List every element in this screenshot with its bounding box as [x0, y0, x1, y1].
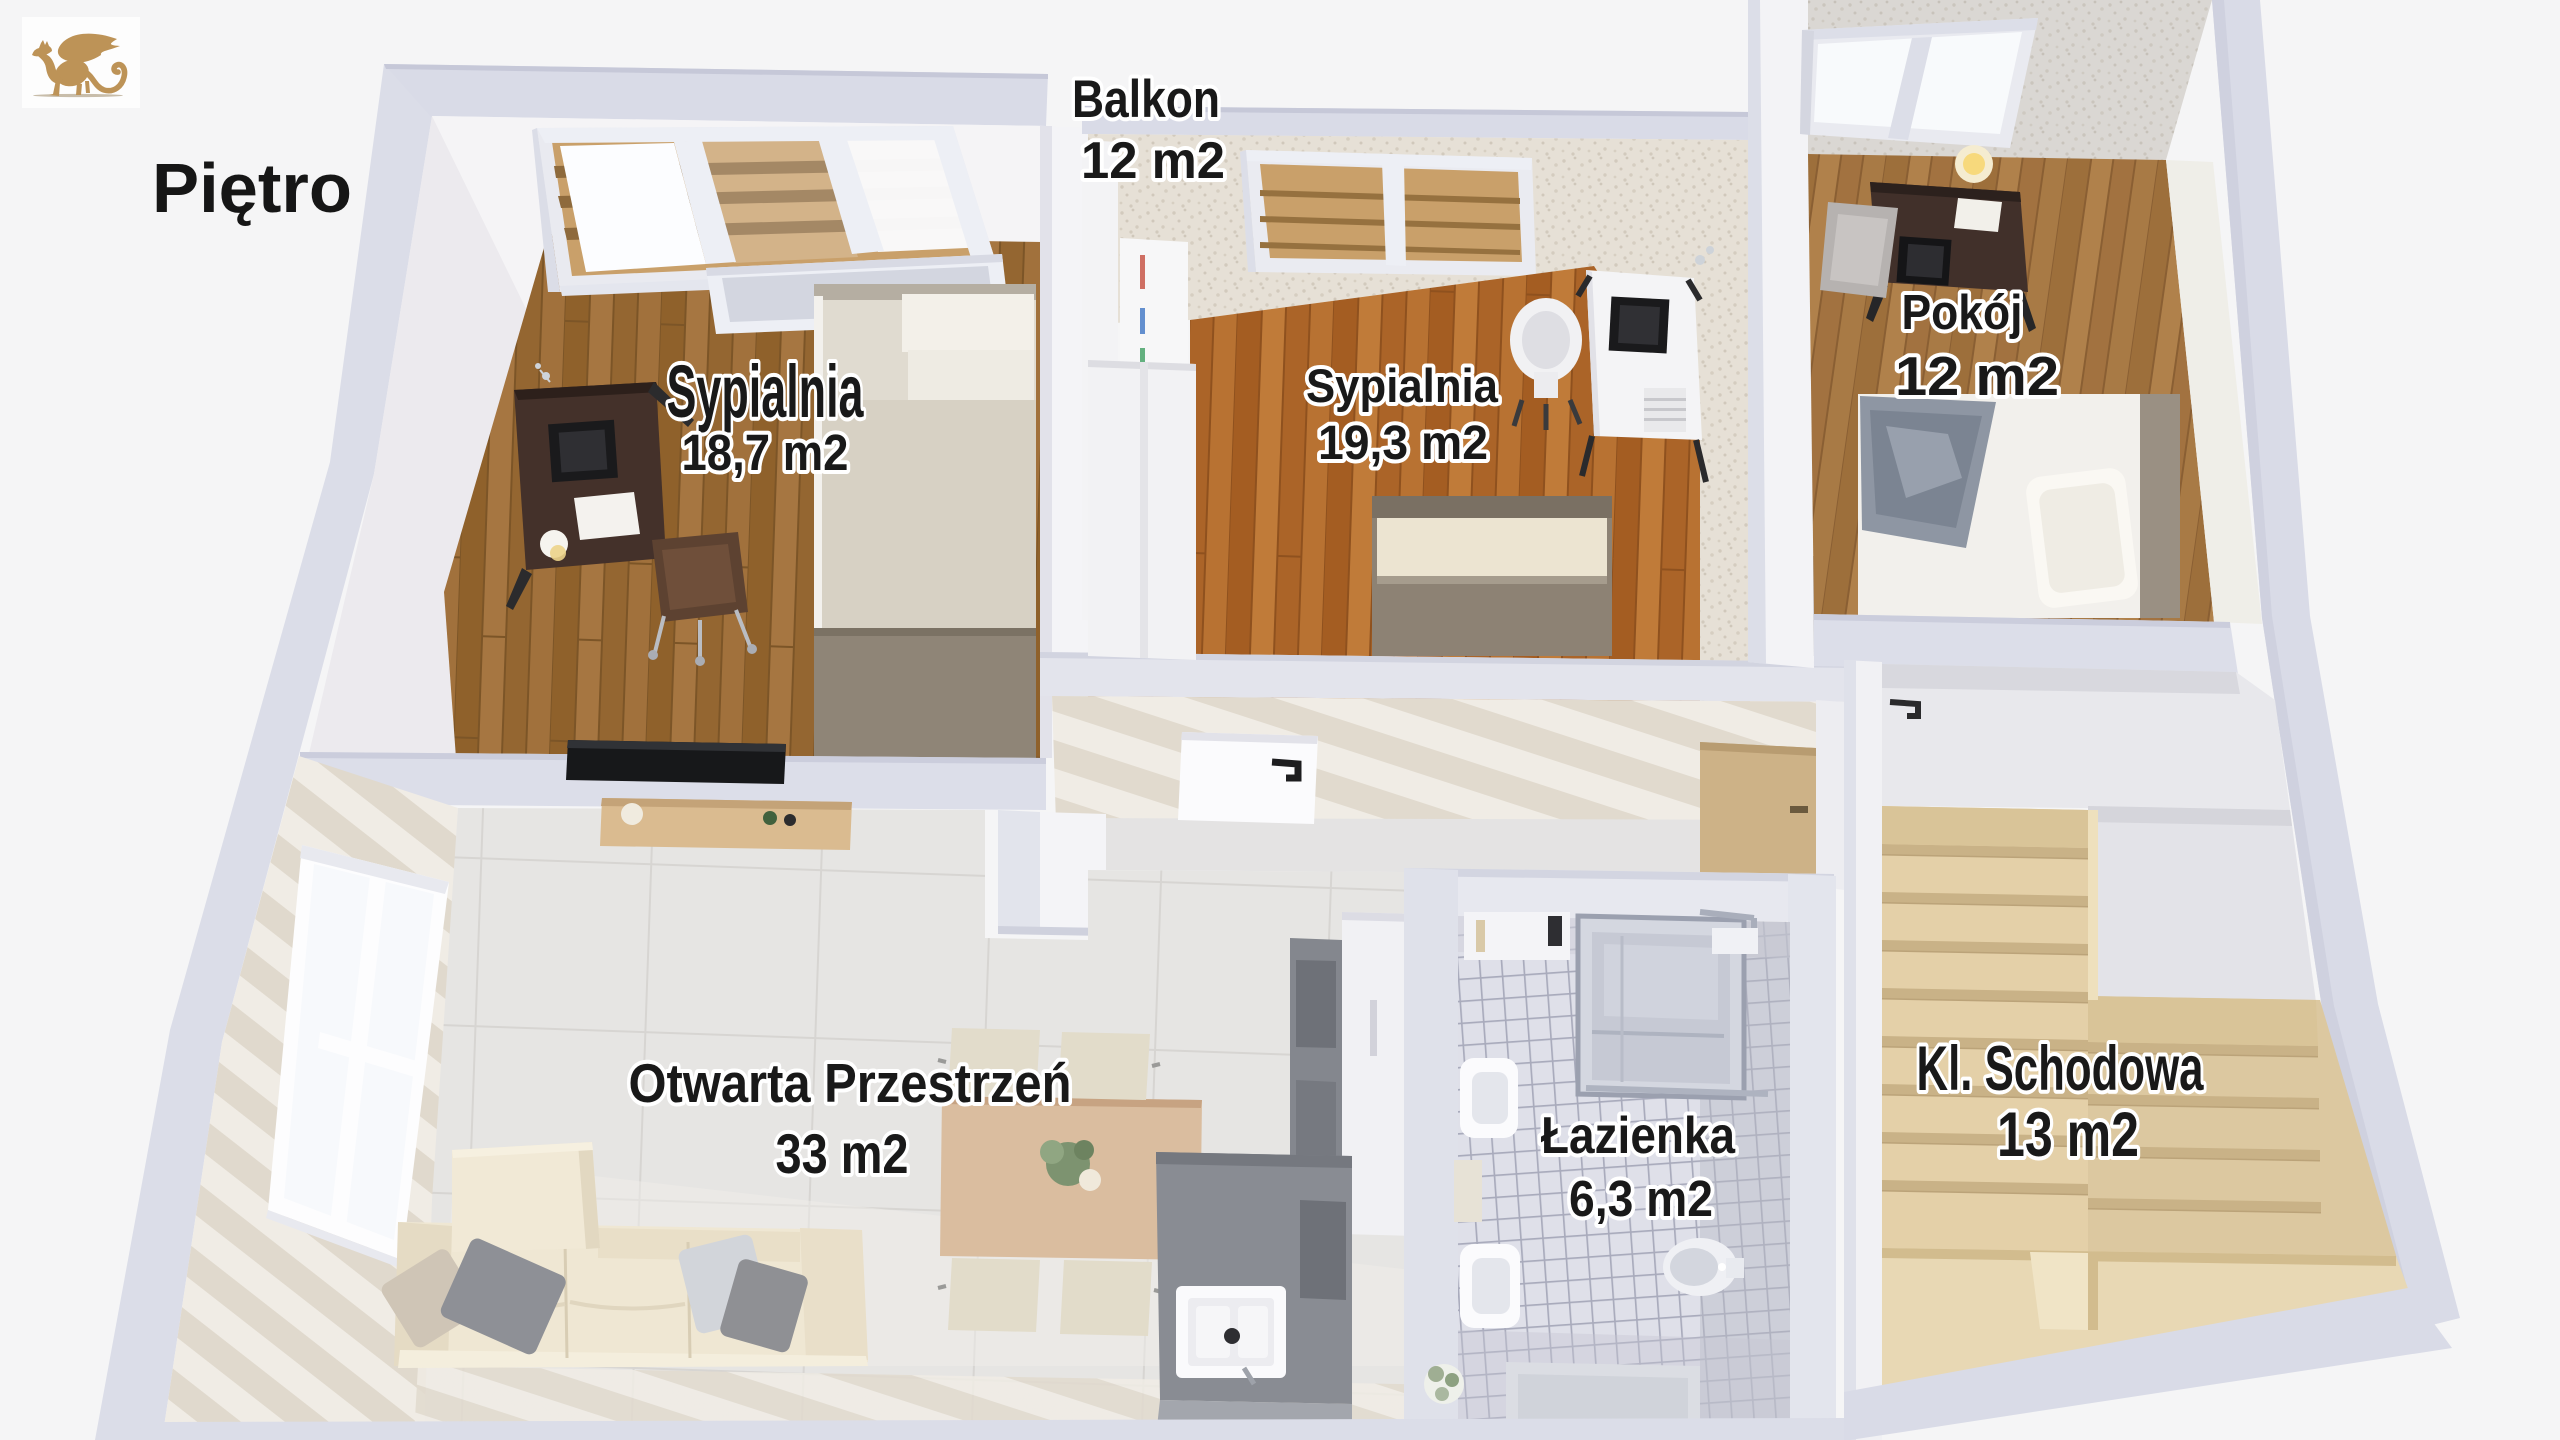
svg-text:Piętro: Piętro — [152, 149, 352, 227]
svg-text:Pokój: Pokój — [1902, 286, 2023, 340]
svg-text:18,7 m2: 18,7 m2 — [682, 424, 849, 481]
svg-text:Łazienka: Łazienka — [1541, 1107, 1736, 1165]
svg-text:12 m2: 12 m2 — [1895, 345, 2059, 407]
svg-text:19,3 m2: 19,3 m2 — [1318, 417, 1488, 470]
svg-text:33 m2: 33 m2 — [776, 1122, 909, 1185]
svg-text:Kl. Schodowa: Kl. Schodowa — [1917, 1034, 2205, 1104]
svg-text:Balkon: Balkon — [1072, 70, 1220, 129]
svg-text:Sypialnia: Sypialnia — [1306, 359, 1499, 412]
svg-text:13 m2: 13 m2 — [1997, 1100, 2139, 1170]
svg-text:Sypialnia: Sypialnia — [667, 350, 865, 433]
svg-text:12 m2: 12 m2 — [1081, 132, 1225, 190]
svg-text:6,3 m2: 6,3 m2 — [1569, 1170, 1713, 1227]
svg-text:Otwarta Przestrzeń: Otwarta Przestrzeń — [629, 1052, 1072, 1114]
